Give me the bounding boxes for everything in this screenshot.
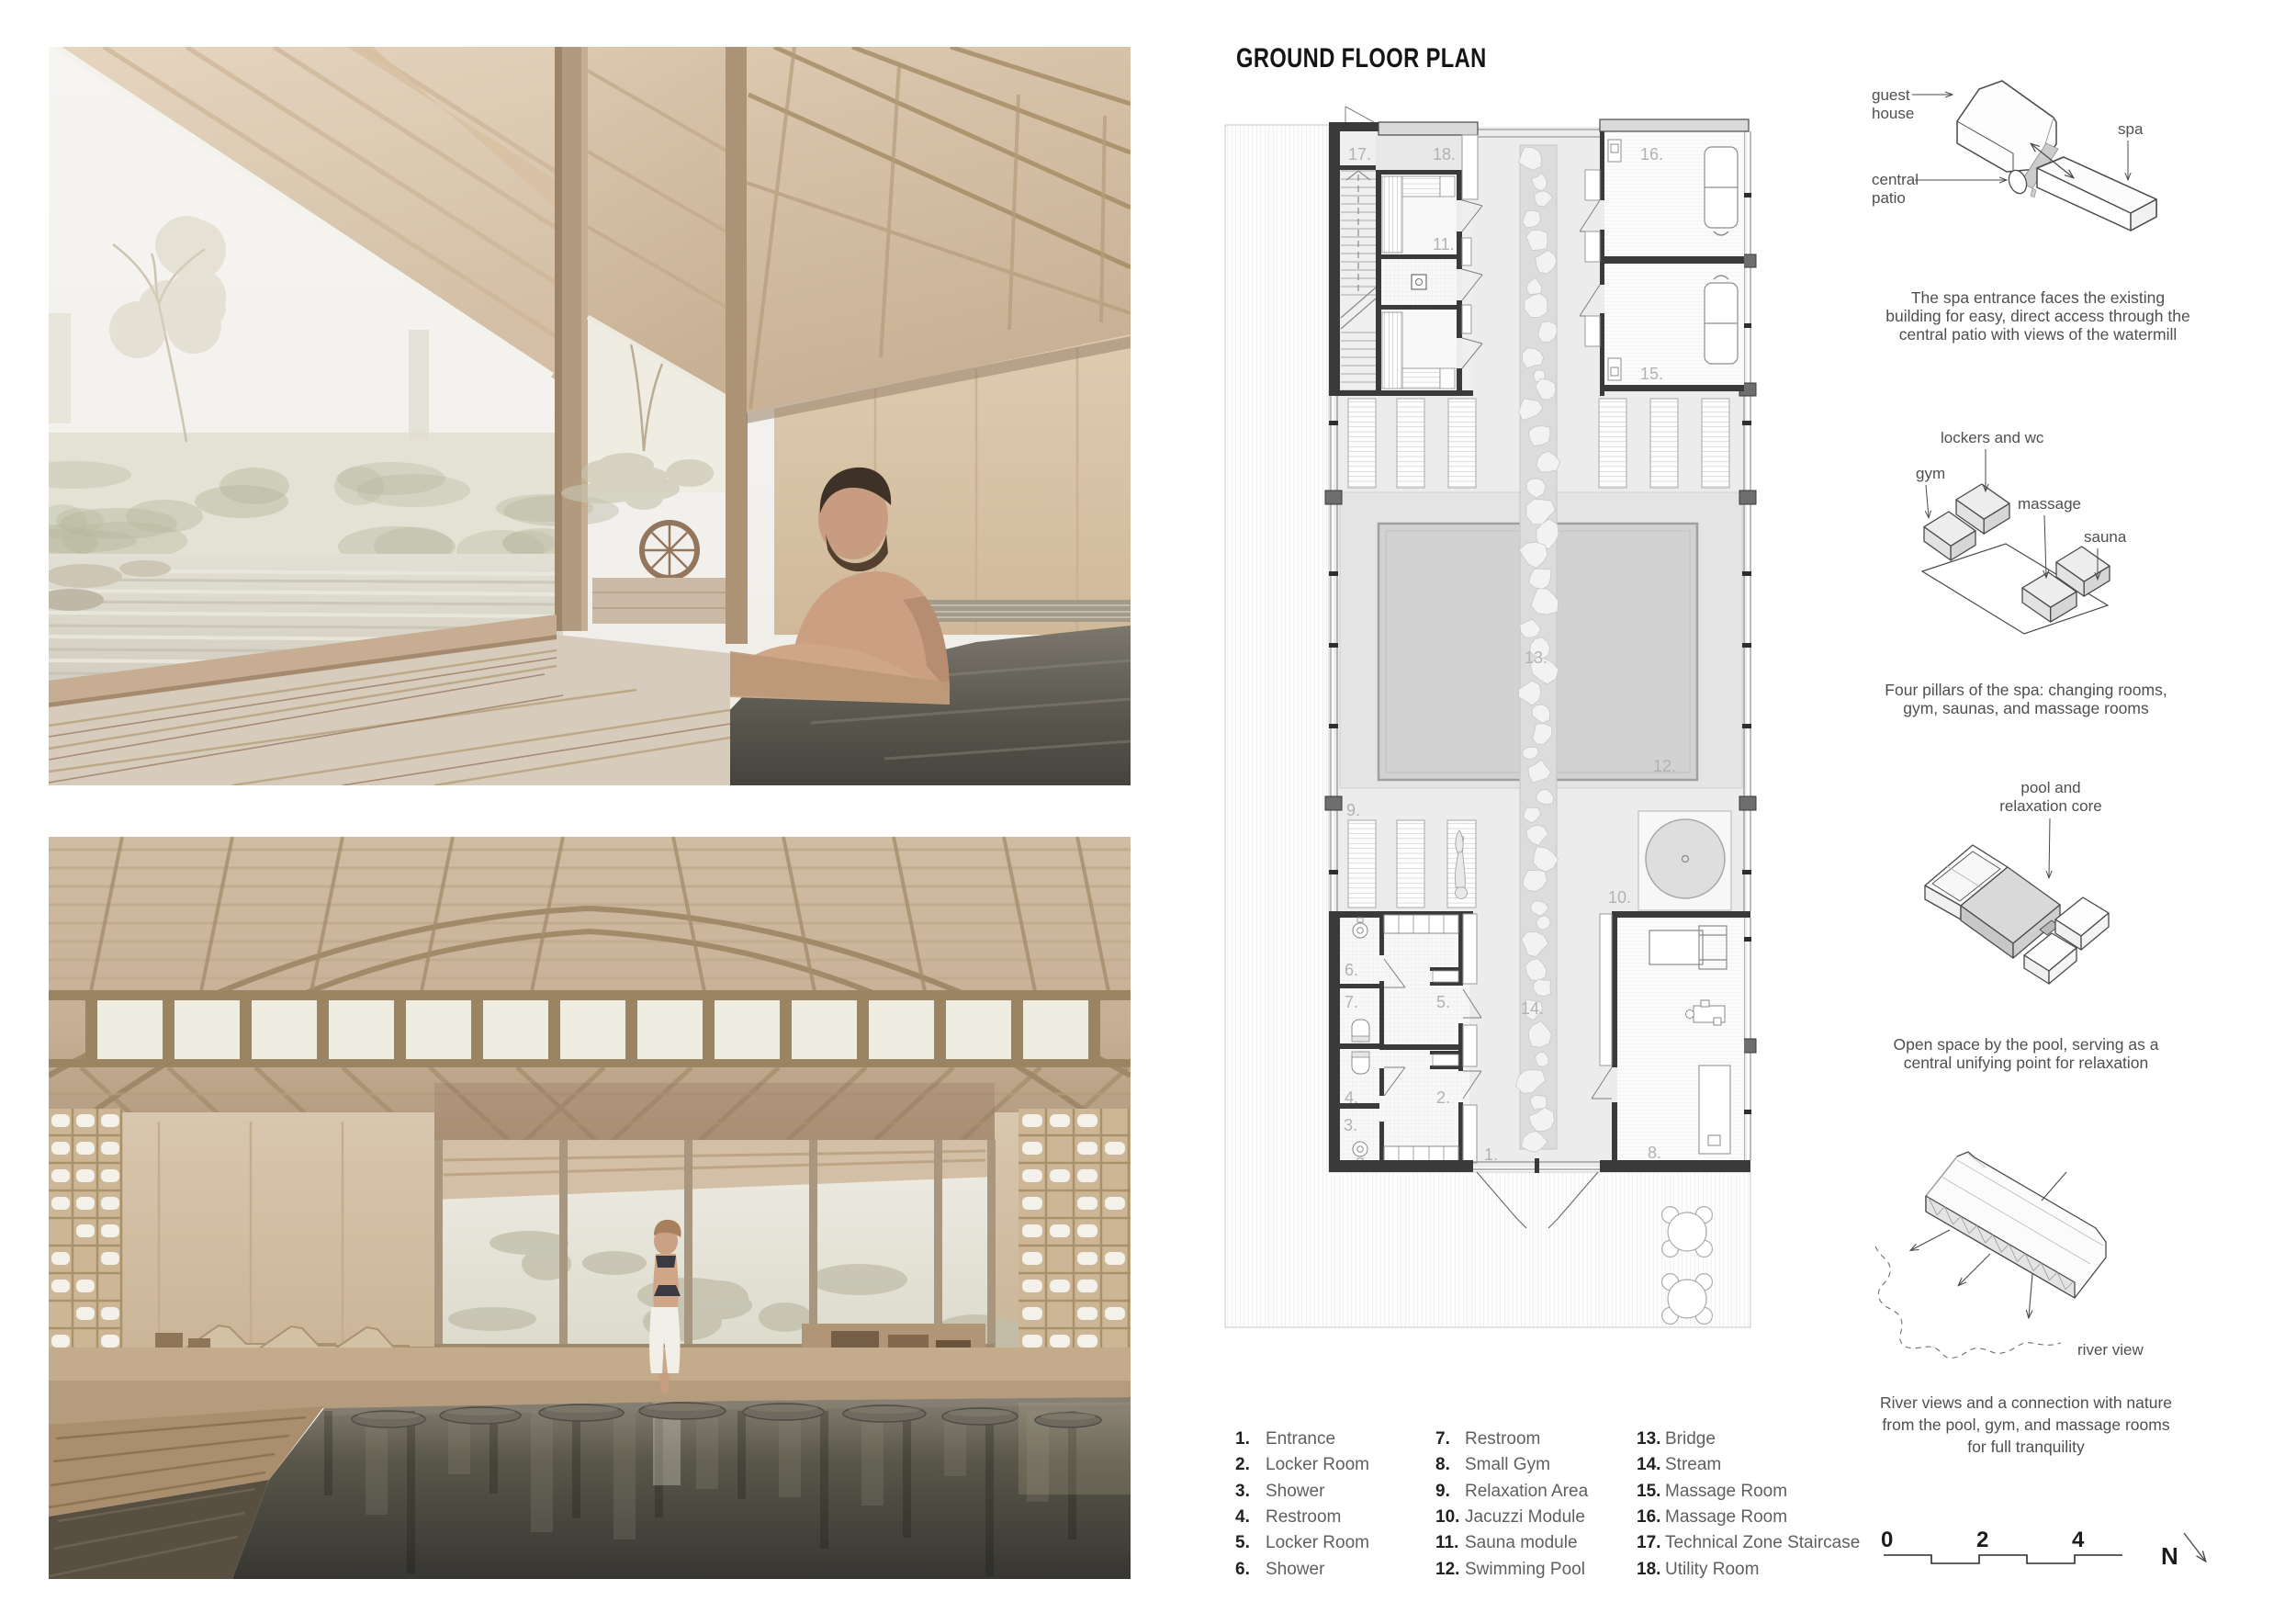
svg-text:11.: 11. xyxy=(1433,235,1455,254)
svg-text:15.: 15. xyxy=(1640,365,1663,383)
svg-text:central: central xyxy=(1872,171,1919,188)
svg-text:3.: 3. xyxy=(1344,1116,1357,1134)
svg-text:building for easy, direct acce: building for easy, direct access through… xyxy=(1885,307,2189,325)
svg-text:gym, saunas, and massage rooms: gym, saunas, and massage rooms xyxy=(1903,699,2149,717)
svg-text:house: house xyxy=(1872,105,1914,122)
svg-text:7.: 7. xyxy=(1345,993,1358,1011)
svg-text:The spa entrance faces the exi: The spa entrance faces the existing xyxy=(1911,288,2165,307)
svg-text:14.: 14. xyxy=(1521,999,1544,1018)
svg-text:2: 2 xyxy=(1976,1528,1988,1552)
svg-text:8.: 8. xyxy=(1648,1144,1661,1162)
svg-text:massage: massage xyxy=(2018,495,2081,513)
svg-text:Open space by the pool, servin: Open space by the pool, serving as a xyxy=(1894,1035,2159,1054)
svg-text:central patio with views of th: central patio with views of the watermil… xyxy=(1899,325,2177,344)
svg-text:17.: 17. xyxy=(1348,145,1371,164)
svg-text:N: N xyxy=(2161,1542,2178,1570)
svg-text:12.: 12. xyxy=(1653,757,1676,775)
svg-text:central unifying point for rel: central unifying point for relaxation xyxy=(1904,1054,2149,1072)
svg-text:4.: 4. xyxy=(1345,1088,1358,1107)
svg-text:1.: 1. xyxy=(1484,1145,1498,1164)
svg-text:13.: 13. xyxy=(1525,648,1548,667)
svg-text:Four pillars of the spa: chang: Four pillars of the spa: changing rooms, xyxy=(1885,681,2167,699)
svg-text:2.: 2. xyxy=(1436,1088,1450,1107)
svg-text:gym: gym xyxy=(1916,465,1945,482)
svg-text:10.: 10. xyxy=(1608,888,1631,907)
svg-text:spa: spa xyxy=(2118,120,2144,138)
svg-text:patio: patio xyxy=(1872,189,1906,207)
svg-text:4: 4 xyxy=(2072,1528,2085,1552)
svg-text:16.: 16. xyxy=(1640,145,1663,164)
svg-text:from the pool, gym, and massag: from the pool, gym, and massage rooms xyxy=(1882,1415,2169,1434)
svg-text:guest: guest xyxy=(1872,86,1910,104)
svg-text:for full tranquility: for full tranquility xyxy=(1967,1438,2085,1456)
svg-text:relaxation core: relaxation core xyxy=(1999,797,2102,815)
svg-text:river view: river view xyxy=(2077,1341,2144,1359)
svg-text:18.: 18. xyxy=(1433,145,1456,164)
svg-text:pool and: pool and xyxy=(2020,779,2080,796)
svg-text:River views and a connection w: River views and a connection with nature xyxy=(1880,1393,2172,1412)
svg-text:sauna: sauna xyxy=(2084,528,2127,546)
svg-text:9.: 9. xyxy=(1346,801,1360,819)
svg-text:5.: 5. xyxy=(1436,993,1450,1011)
svg-text:6.: 6. xyxy=(1345,961,1358,979)
svg-text:lockers and wc: lockers and wc xyxy=(1941,429,2044,446)
svg-text:0: 0 xyxy=(1881,1528,1893,1552)
